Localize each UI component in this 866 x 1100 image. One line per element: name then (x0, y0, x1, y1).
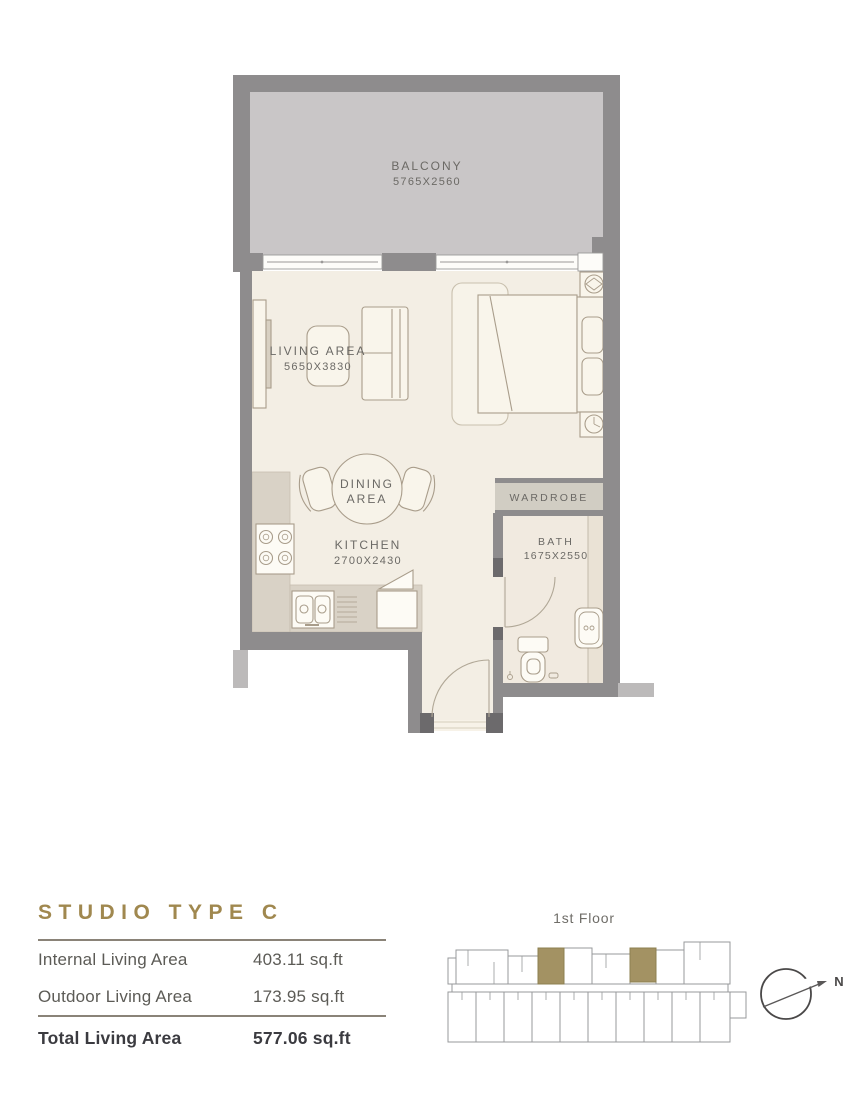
wall-balcony-left (233, 75, 250, 272)
brochure-page: BALCONY 5765X2560 LIVING AREA 5650X3830 … (0, 0, 866, 1100)
shower-strip (588, 516, 604, 683)
pillow (582, 358, 603, 395)
footprint-corridor (452, 984, 728, 992)
kitchen-sink (292, 591, 334, 628)
wall-top (233, 75, 620, 92)
highlighted-unit (538, 948, 564, 984)
compass-needle (763, 982, 824, 1007)
washbasin (575, 608, 603, 648)
tv-console (253, 300, 266, 408)
sofa (362, 307, 408, 400)
area-label: Internal Living Area (38, 950, 253, 970)
neighbor-wall-stub (618, 683, 654, 697)
balcony-floor (250, 92, 603, 256)
wardrobe-bottom-wall (495, 510, 603, 516)
area-row-outdoor: Outdoor Living Area 173.95 sq.ft (38, 978, 386, 1015)
unit-title: STUDIO TYPE C (38, 901, 386, 925)
wall-left-interior (240, 253, 252, 650)
unit-details: STUDIO TYPE C Internal Living Area 403.1… (38, 901, 386, 1049)
compass-arrowhead (817, 981, 827, 987)
footprint-step (730, 992, 746, 1018)
bath-door-post (493, 627, 503, 640)
wardrobe-top-wall (495, 478, 603, 483)
pillow (582, 317, 603, 353)
bath-door-post (493, 558, 503, 577)
wall-window-stub (382, 253, 436, 271)
highlighted-unit (630, 948, 656, 982)
dining-area-label-line1: DINING (340, 477, 394, 491)
compass-north-label: N (834, 974, 843, 989)
balcony-label: BALCONY (391, 159, 462, 173)
wall-right (603, 75, 620, 697)
kitchen-label: KITCHEN (335, 538, 402, 552)
area-value: 173.95 sq.ft (253, 987, 386, 1007)
compass: N (761, 969, 844, 1019)
living-area-label: LIVING AREA (270, 344, 367, 358)
area-row-internal: Internal Living Area 403.11 sq.ft (38, 941, 386, 978)
bath-label: BATH (538, 536, 574, 548)
wall-bath-bottom (503, 683, 604, 697)
toilet (518, 637, 548, 682)
area-row-total: Total Living Area 577.06 sq.ft (38, 1017, 386, 1049)
compass-circle (761, 969, 811, 1019)
dining-area-label-line2: AREA (347, 492, 388, 506)
area-label: Outdoor Living Area (38, 987, 253, 1007)
balcony-dims: 5765X2560 (393, 176, 461, 188)
stove (256, 524, 294, 574)
kitchen-dims: 2700X2430 (334, 555, 402, 567)
entry-threshold (434, 720, 486, 731)
floor-key-label: 1st Floor (553, 910, 615, 926)
neighbor-wall-stub (233, 650, 248, 688)
area-value: 403.11 sq.ft (253, 950, 386, 970)
key-plan: 1st Floor (448, 910, 844, 1042)
wall-step-right (592, 237, 620, 255)
building-footprint (448, 942, 746, 1042)
wall-kitchen-bottom (240, 632, 422, 650)
total-value: 577.06 sq.ft (253, 1028, 386, 1049)
wardrobe-label: WARDROBE (509, 492, 588, 504)
wall-window-corner (233, 253, 263, 271)
total-label: Total Living Area (38, 1028, 253, 1049)
bath-dims: 1675X2550 (524, 550, 589, 562)
living-area-dims: 5650X3830 (284, 361, 352, 373)
window-post (578, 253, 603, 271)
